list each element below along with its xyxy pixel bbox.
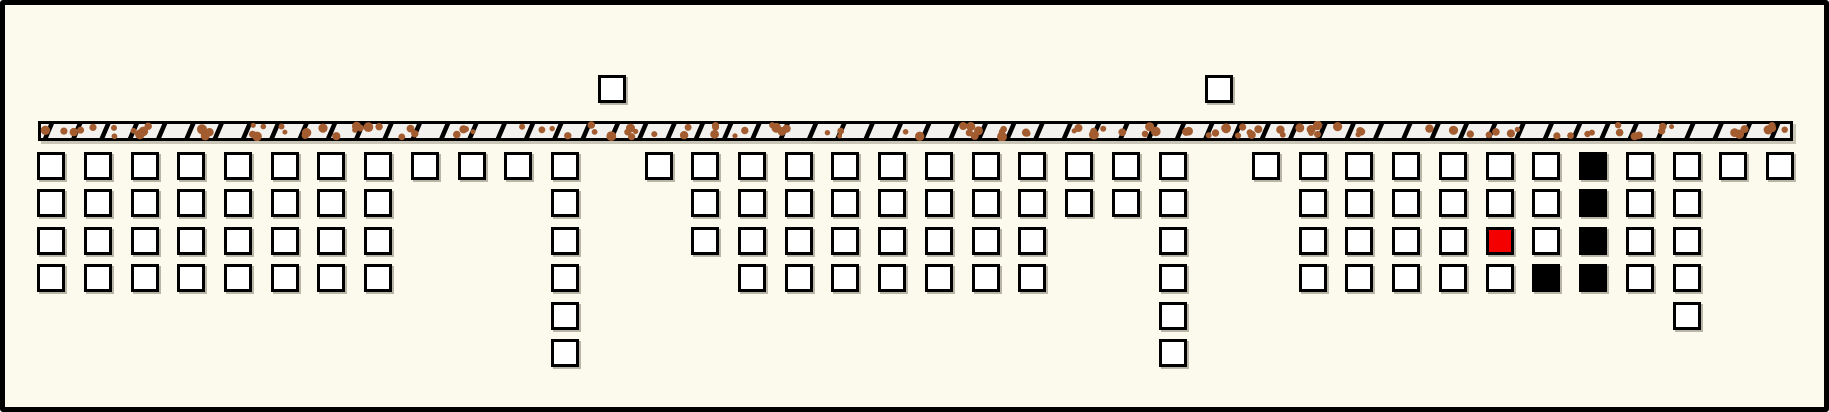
board-cell[interactable] [972, 264, 1000, 292]
above-strip-cell[interactable] [1205, 75, 1233, 103]
board-cell[interactable] [972, 227, 1000, 255]
board-cell[interactable] [271, 189, 299, 217]
board-cell[interactable] [1626, 189, 1654, 217]
board-cell[interactable] [551, 189, 579, 217]
board-cell[interactable] [831, 189, 859, 217]
board-cell[interactable] [1018, 189, 1046, 217]
board-cell[interactable] [224, 152, 252, 180]
board-cell[interactable] [831, 152, 859, 180]
board-cell[interactable] [1299, 189, 1327, 217]
board-cell[interactable] [131, 264, 159, 292]
board-cell[interactable] [878, 264, 906, 292]
board-cell[interactable] [972, 152, 1000, 180]
board-cell[interactable] [364, 264, 392, 292]
board-cell[interactable] [878, 152, 906, 180]
board-cell[interactable] [1673, 302, 1701, 330]
board-cell[interactable] [458, 152, 486, 180]
board-cell[interactable] [1392, 152, 1420, 180]
board-cell[interactable] [131, 189, 159, 217]
board-cell[interactable] [785, 189, 813, 217]
board-cell[interactable] [1626, 264, 1654, 292]
board-cell[interactable] [37, 152, 65, 180]
board-cell[interactable] [224, 227, 252, 255]
board-cell[interactable] [831, 227, 859, 255]
board-cell[interactable] [1345, 227, 1373, 255]
board-cell[interactable] [972, 189, 1000, 217]
board-cell-black[interactable] [1579, 152, 1607, 180]
board-cell[interactable] [1345, 264, 1373, 292]
board-cell[interactable] [878, 227, 906, 255]
board-cell[interactable] [504, 152, 532, 180]
board-cell[interactable] [1486, 189, 1514, 217]
board-cell[interactable] [1112, 152, 1140, 180]
board-cell[interactable] [1439, 227, 1467, 255]
board-cell[interactable] [177, 152, 205, 180]
board-cell[interactable] [925, 152, 953, 180]
board-cell[interactable] [785, 264, 813, 292]
board-cell[interactable] [925, 264, 953, 292]
board-cell[interactable] [1112, 189, 1140, 217]
board-cell[interactable] [1719, 152, 1747, 180]
board-cell[interactable] [738, 189, 766, 217]
board-cell[interactable] [691, 227, 719, 255]
board-cell[interactable] [1392, 227, 1420, 255]
board-cell[interactable] [1299, 227, 1327, 255]
board-cell[interactable] [224, 189, 252, 217]
board-cell[interactable] [738, 227, 766, 255]
board-cell[interactable] [831, 264, 859, 292]
board-cell[interactable] [691, 152, 719, 180]
board-cell[interactable] [551, 264, 579, 292]
board-cell[interactable] [1532, 227, 1560, 255]
board-cell[interactable] [1439, 189, 1467, 217]
board-cell[interactable] [411, 152, 439, 180]
board-cell[interactable] [1159, 339, 1187, 367]
board-cell[interactable] [271, 227, 299, 255]
board-cell[interactable] [1626, 152, 1654, 180]
board-cell-red[interactable] [1486, 227, 1514, 255]
board-cell[interactable] [1392, 189, 1420, 217]
board-cell[interactable] [1532, 152, 1560, 180]
board-cell[interactable] [84, 189, 112, 217]
board-cell[interactable] [1766, 152, 1794, 180]
board-cell[interactable] [1626, 227, 1654, 255]
board-cell[interactable] [1018, 264, 1046, 292]
board-cell[interactable] [1065, 152, 1093, 180]
board-cell[interactable] [551, 152, 579, 180]
board-cell[interactable] [317, 227, 345, 255]
board-cell[interactable] [1159, 264, 1187, 292]
board-cell[interactable] [1439, 152, 1467, 180]
board-cell[interactable] [177, 189, 205, 217]
board-cell[interactable] [37, 189, 65, 217]
board-cell[interactable] [645, 152, 673, 180]
board-cell[interactable] [1345, 152, 1373, 180]
board-cell[interactable] [738, 152, 766, 180]
board-cell[interactable] [738, 264, 766, 292]
board-cell[interactable] [1159, 189, 1187, 217]
board-cell-black[interactable] [1532, 264, 1560, 292]
board-cell[interactable] [84, 264, 112, 292]
board-cell[interactable] [131, 227, 159, 255]
board-cell[interactable] [317, 152, 345, 180]
board-cell[interactable] [785, 152, 813, 180]
board-cell[interactable] [84, 152, 112, 180]
board-cell[interactable] [37, 264, 65, 292]
board-cell[interactable] [271, 264, 299, 292]
board-cell[interactable] [785, 227, 813, 255]
board-cell[interactable] [925, 189, 953, 217]
board-cell[interactable] [1673, 189, 1701, 217]
board-cell[interactable] [364, 189, 392, 217]
board-cell-black[interactable] [1579, 227, 1607, 255]
board-cell[interactable] [1065, 189, 1093, 217]
board-cell[interactable] [131, 152, 159, 180]
board-cell[interactable] [1486, 264, 1514, 292]
board-cell[interactable] [364, 227, 392, 255]
cells-layer [5, 5, 1824, 407]
board-cell[interactable] [1159, 152, 1187, 180]
board-cell[interactable] [271, 152, 299, 180]
board-cell[interactable] [177, 227, 205, 255]
board-cell[interactable] [1673, 264, 1701, 292]
board-cell[interactable] [1159, 227, 1187, 255]
board-cell[interactable] [925, 227, 953, 255]
board-cell-black[interactable] [1579, 189, 1607, 217]
board-cell[interactable] [1159, 302, 1187, 330]
board-cell[interactable] [1018, 152, 1046, 180]
board-cell[interactable] [1018, 227, 1046, 255]
board-cell[interactable] [317, 264, 345, 292]
board-cell[interactable] [1439, 264, 1467, 292]
board-cell[interactable] [1299, 264, 1327, 292]
board-cell[interactable] [177, 264, 205, 292]
board-cell[interactable] [691, 189, 719, 217]
board-cell[interactable] [878, 189, 906, 217]
board-cell[interactable] [1252, 152, 1280, 180]
board-cell[interactable] [1673, 227, 1701, 255]
board-cell[interactable] [551, 339, 579, 367]
board-cell[interactable] [1532, 189, 1560, 217]
board-cell[interactable] [1673, 152, 1701, 180]
board-cell[interactable] [1486, 152, 1514, 180]
board-cell[interactable] [84, 227, 112, 255]
board-frame [0, 0, 1829, 412]
board-cell[interactable] [551, 227, 579, 255]
board-cell[interactable] [37, 227, 65, 255]
board-cell[interactable] [364, 152, 392, 180]
board-cell[interactable] [1392, 264, 1420, 292]
board-cell[interactable] [551, 302, 579, 330]
board-cell[interactable] [1345, 189, 1373, 217]
board-cell[interactable] [224, 264, 252, 292]
board-cell[interactable] [317, 189, 345, 217]
board-cell-black[interactable] [1579, 264, 1607, 292]
above-strip-cell[interactable] [598, 75, 626, 103]
board-cell[interactable] [1299, 152, 1327, 180]
